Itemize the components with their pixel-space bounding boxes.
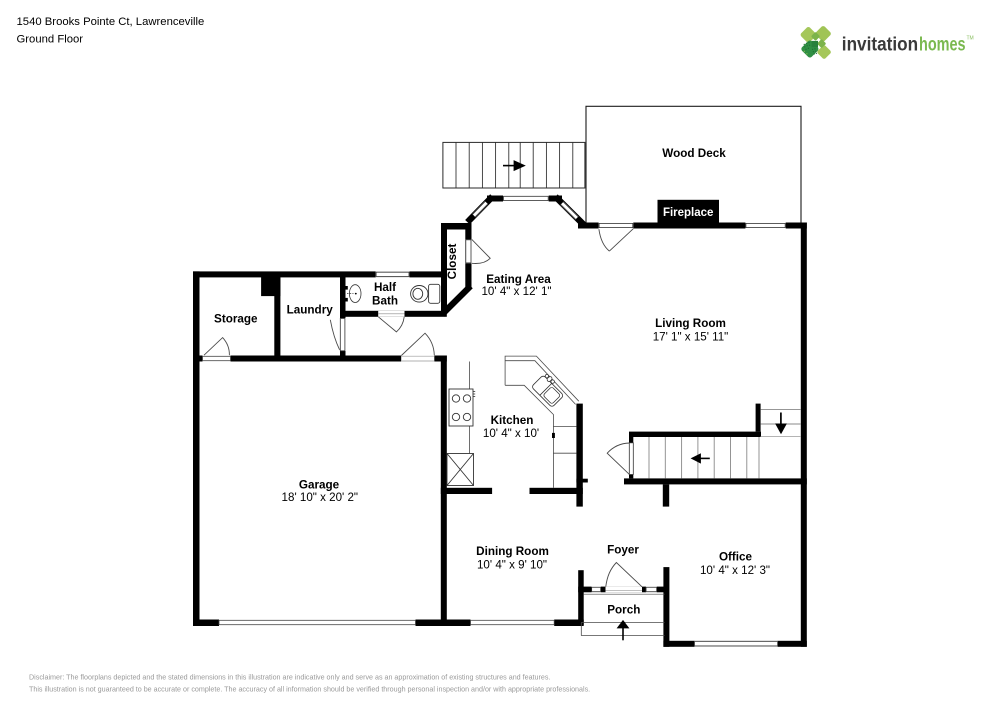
svg-text:Eating Area: Eating Area bbox=[486, 273, 551, 286]
svg-text:Porch: Porch bbox=[607, 604, 640, 617]
svg-text:Dining Room: Dining Room bbox=[476, 545, 549, 558]
svg-text:invitation: invitation bbox=[842, 34, 918, 55]
svg-text:Half: Half bbox=[374, 281, 396, 294]
svg-text:Bath: Bath bbox=[372, 295, 398, 308]
svg-text:1540 Brooks Pointe Ct, Lawrenc: 1540 Brooks Pointe Ct, Lawrenceville bbox=[17, 16, 205, 28]
svg-text:17' 1" x 15' 11": 17' 1" x 15' 11" bbox=[653, 331, 729, 344]
svg-text:Disclaimer: The floorplans dep: Disclaimer: The floorplans depicted and … bbox=[29, 674, 550, 682]
svg-text:homes: homes bbox=[919, 34, 966, 55]
svg-text:10' 4" x 10': 10' 4" x 10' bbox=[483, 427, 539, 440]
svg-text:Closet: Closet bbox=[446, 244, 459, 280]
svg-text:Office: Office bbox=[719, 551, 753, 564]
svg-text:Living Room: Living Room bbox=[655, 317, 726, 330]
svg-text:Storage: Storage bbox=[214, 313, 258, 326]
svg-text:TM: TM bbox=[967, 36, 974, 42]
svg-text:Laundry: Laundry bbox=[287, 304, 334, 317]
svg-text:Kitchen: Kitchen bbox=[491, 414, 534, 427]
svg-text:10' 4" x 12' 3": 10' 4" x 12' 3" bbox=[700, 564, 770, 577]
svg-text:Ground Floor: Ground Floor bbox=[17, 34, 84, 46]
svg-text:10' 4" x 12' 1": 10' 4" x 12' 1" bbox=[481, 285, 551, 298]
svg-text:Wood Deck: Wood Deck bbox=[662, 147, 726, 160]
svg-text:10' 4" x 9' 10": 10' 4" x 9' 10" bbox=[477, 559, 547, 572]
svg-text:18' 10" x 20' 2": 18' 10" x 20' 2" bbox=[282, 491, 358, 504]
svg-text:Foyer: Foyer bbox=[607, 544, 639, 557]
svg-text:Fireplace: Fireplace bbox=[663, 207, 714, 219]
svg-text:Garage: Garage bbox=[299, 479, 340, 492]
svg-text:This illustration is not guara: This illustration is not guaranteed to b… bbox=[29, 686, 590, 694]
